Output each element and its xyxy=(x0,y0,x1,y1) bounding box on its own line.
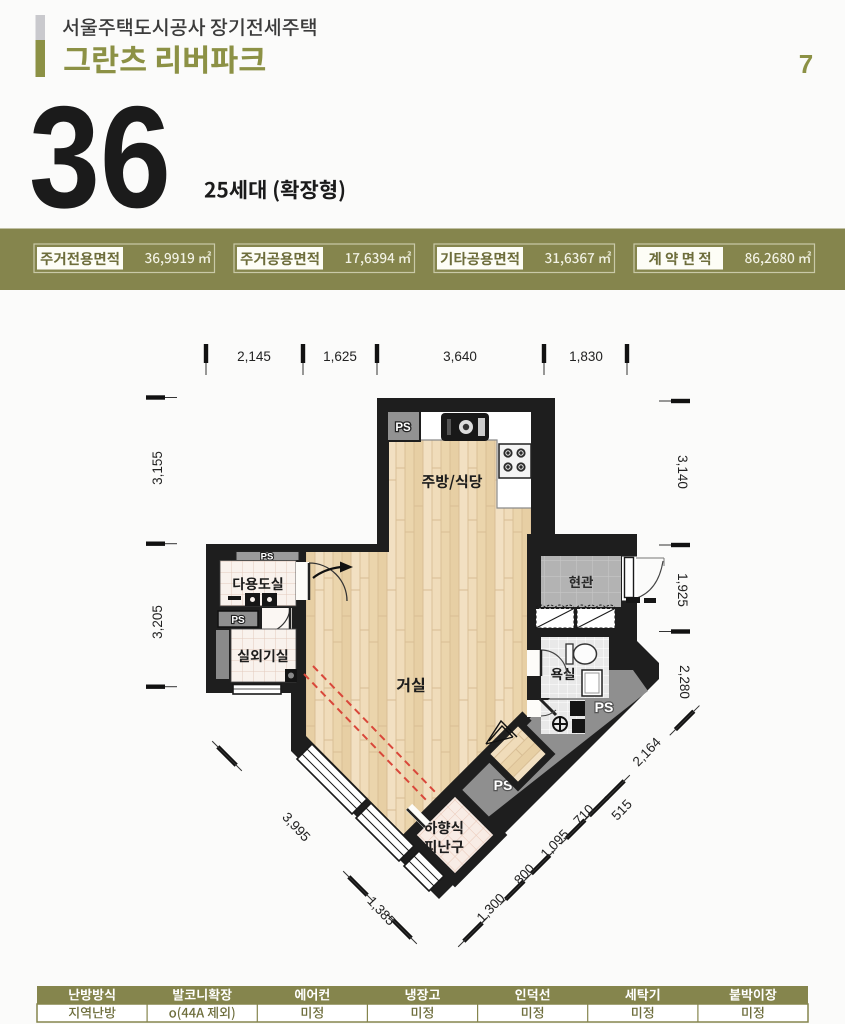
svg-text:PS: PS xyxy=(395,422,411,434)
svg-text:PS: PS xyxy=(231,615,245,626)
svg-text:3,205: 3,205 xyxy=(150,605,165,639)
svg-text:3,640: 3,640 xyxy=(443,349,477,364)
svg-text:7: 7 xyxy=(799,49,813,79)
svg-text:1,625: 1,625 xyxy=(323,349,357,364)
svg-text:1,925: 1,925 xyxy=(675,573,690,607)
svg-text:1,830: 1,830 xyxy=(569,349,603,364)
svg-text:36: 36 xyxy=(29,75,171,237)
svg-text:2,280: 2,280 xyxy=(677,665,692,699)
svg-text:3,140: 3,140 xyxy=(675,455,690,489)
svg-text:2,145: 2,145 xyxy=(237,349,271,364)
svg-text:3,155: 3,155 xyxy=(150,451,165,485)
svg-text:PS: PS xyxy=(595,699,614,715)
